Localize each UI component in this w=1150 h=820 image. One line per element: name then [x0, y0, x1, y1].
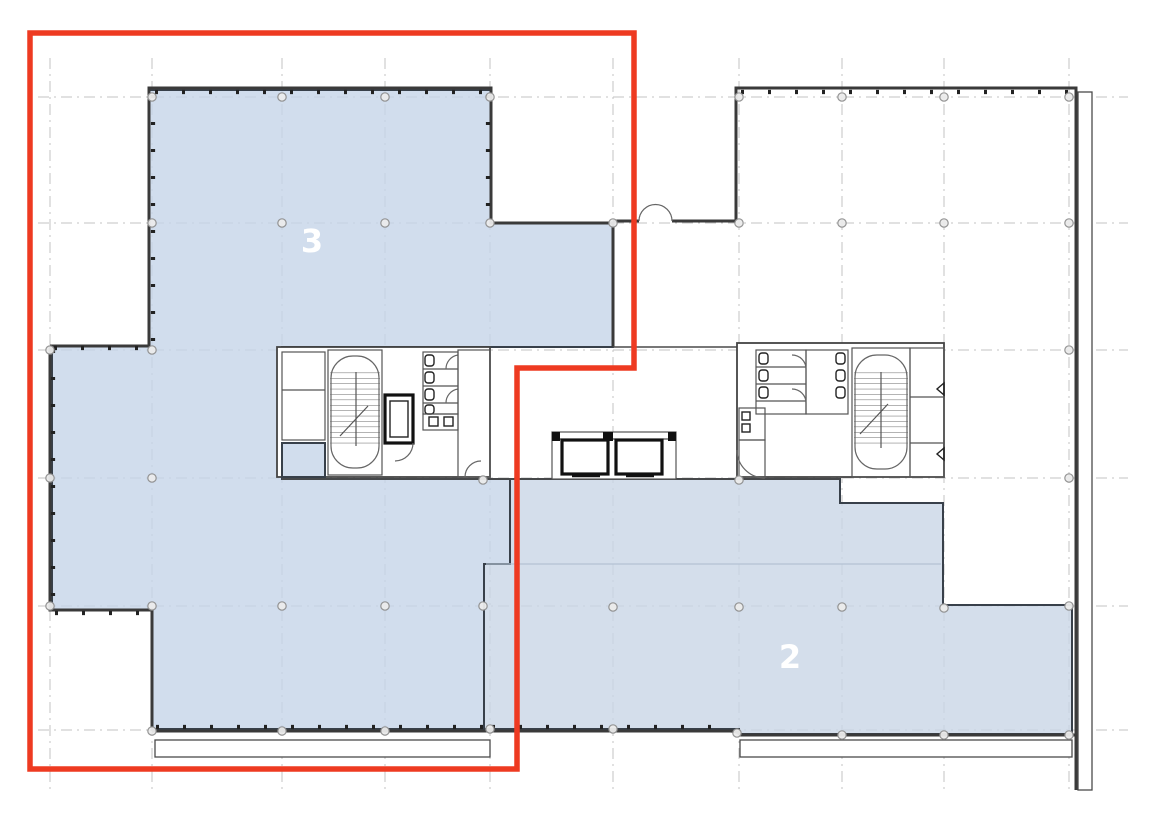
central-elevators: [552, 432, 676, 479]
left-elevator: [385, 395, 413, 443]
elevator-car-left: [562, 440, 608, 474]
zone-3-label: 3: [301, 222, 323, 260]
corridor-door-arc: [639, 205, 672, 221]
left-core: [277, 347, 490, 477]
elevator-car-right: [616, 440, 662, 474]
floor-plan-viewport: 3 2: [0, 0, 1150, 820]
floor-plan-drawing: 3 2: [0, 0, 1150, 820]
left-core-highlighted-room[interactable]: [282, 443, 325, 477]
right-core: [737, 343, 944, 478]
zone-2-label: 2: [779, 638, 801, 676]
zone-2-highlight[interactable]: [484, 479, 1072, 734]
